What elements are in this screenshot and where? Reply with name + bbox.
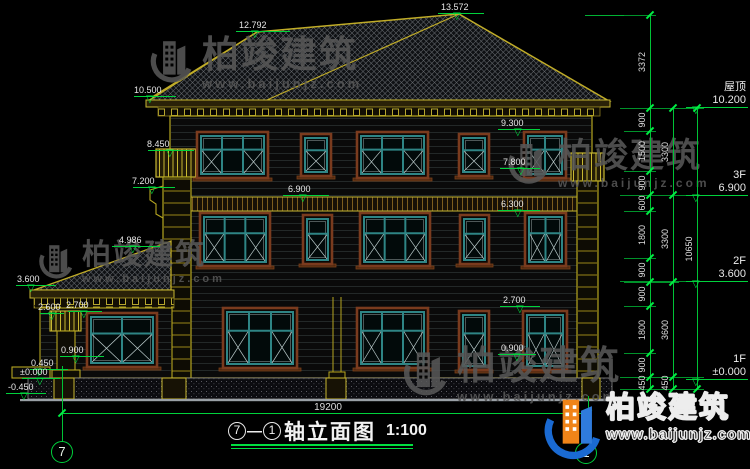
title-separator: — [247,423,262,440]
elevation-marker-label: 2.600 [38,302,61,312]
company-logo: 柏竣建筑 www.baijunjz.com [538,393,750,465]
elevation-marker-triangle: ▽ [251,31,259,39]
elevation-marker-triangle: ▽ [72,356,80,364]
title-text: 轴立面图 [284,416,376,446]
elevation-marker-triangle: ▽ [146,96,154,104]
title-scale: 1:100 [386,422,427,440]
dim-value: 600 [637,195,647,210]
dim-value: 900 [637,357,647,372]
elevation-marker-triangle: ▽ [514,210,522,218]
elevation-marker-triangle: ▽ [148,187,156,195]
elevation-drawing-canvas: 柏竣建筑 www.baijunjz.com 柏竣建筑 www.baijunjz.… [0,0,750,469]
elevation-marker-triangle: ▽ [36,378,44,386]
elevation-marker-label: 2.700 [66,300,89,310]
dim-value: 1800 [637,319,647,339]
elevation-marker-line [134,96,176,97]
total-width-dim: 19200 [303,402,353,413]
elevation-marker-triangle: ▽ [129,246,137,254]
dim-value: 3372 [637,51,647,71]
elevation-marker-triangle: ▽ [299,195,307,203]
dim-value: 3300 [660,141,670,161]
elevation-marker-label: 2.700 [503,295,526,305]
dim-value: 3600 [660,319,670,339]
dim-value: 900 [637,112,647,127]
elevation-marker-triangle: ▽ [166,150,174,158]
level-elevation-value: 3.600 [690,268,746,280]
watermark-url: www.baijunjz.com [82,273,225,285]
watermark: 柏竣建筑 www.baijunjz.com [501,139,710,190]
elevation-marker-label: 9.300 [501,118,524,128]
drawing-title: 7 — 1 轴立面图 1:100 [228,416,427,446]
elevation-marker-triangle: ▽ [517,168,525,176]
level-marker-triangle: ▽ [692,195,700,203]
dim-value: 1800 [637,224,647,244]
window-frame [464,219,485,260]
elevation-marker-triangle: ▽ [513,354,521,362]
title-axis-end: 1 [263,422,281,440]
elevation-marker-label: 7.200 [132,176,155,186]
title-underline [231,448,413,449]
title-underline [231,444,413,446]
dim-value: 1500 [637,141,647,161]
watermark-brand: 柏竣建筑 [202,36,362,73]
level-floor-label: 1F [694,353,746,365]
elevation-marker-triangle: ▽ [48,313,56,321]
watermark-logo-icon [143,36,195,88]
elevation-marker-line [236,31,290,32]
elevation-marker-line [16,285,56,286]
axis-bubble-7: 7 [51,441,73,463]
company-logo-brand: 柏竣建筑 [606,393,750,425]
elevation-marker-triangle: ▽ [20,393,28,401]
elevation-marker-triangle: ▽ [453,13,461,21]
watermark-brand: 柏竣建筑 [558,139,710,173]
elevation-marker-line [438,13,484,14]
level-marker-triangle: ▽ [692,281,700,289]
elevation-marker-label: 13.572 [441,2,469,12]
elevation-marker-triangle: ▽ [516,306,524,314]
window-frame [361,136,424,174]
window-frame [201,136,264,174]
dim-chain-line [673,108,674,389]
dim-value: 900 [637,262,647,277]
window-frame [305,138,327,172]
elevation-marker-line [60,356,104,357]
dim-value: 3300 [660,228,670,248]
watermark: 柏竣建筑 www.baijunjz.com [143,36,362,91]
dim-value: 450 [660,375,670,390]
total-dim-line [62,413,588,414]
window-frame [364,217,426,262]
elevation-marker-label: 12.792 [239,20,267,30]
elevation-marker-triangle: ▽ [27,285,35,293]
elevation-marker-label: 7.800 [503,157,526,167]
elevation-marker-label: 6.300 [501,199,524,209]
elevation-marker-label: 3.600 [17,274,40,284]
window-frame [463,138,485,172]
watermark-url: www.baijunjz.com [558,176,710,190]
company-logo-url: www.baijunjz.com [606,426,750,443]
elevation-marker-label: 6.900 [288,184,311,194]
dim-value: 900 [637,175,647,190]
level-floor-label: 3F [694,169,746,181]
axis-7-line [62,366,63,442]
dim-value: 900 [637,286,647,301]
level-elevation-value: ±0.000 [690,366,746,378]
level-floor-label: 2F [694,255,746,267]
watermark-url: www.baijunjz.com [202,76,362,91]
dim-value: 450 [637,375,647,390]
elevation-marker-label: 8.450 [147,139,170,149]
elevation-marker-label: ±0.000 [20,367,47,377]
dim-value: 10650 [684,236,694,261]
level-elevation-value: 6.900 [690,182,746,194]
elevation-marker-label: 10.500 [134,85,162,95]
dim-chain-line [697,108,698,389]
company-logo-icon [538,393,602,465]
window-frame [227,312,293,364]
elevation-marker-label: 0.900 [61,345,84,355]
elevation-marker-triangle: ▽ [514,129,522,137]
watermark-brand: 柏竣建筑 [457,347,621,386]
floor-band-3f [170,197,592,211]
elevation-marker-triangle: ▽ [80,311,88,319]
dim-chain-line [650,15,651,389]
window-frame [307,219,328,260]
level-floor-label: 屋顶 [694,81,746,93]
elevation-marker-label: -0.450 [8,382,34,392]
elevation-marker-label: 0.900 [501,343,524,353]
title-axis-start: 7 [228,422,246,440]
elevation-marker-label: 4.986 [119,235,142,245]
watermark-logo-icon [396,347,450,401]
